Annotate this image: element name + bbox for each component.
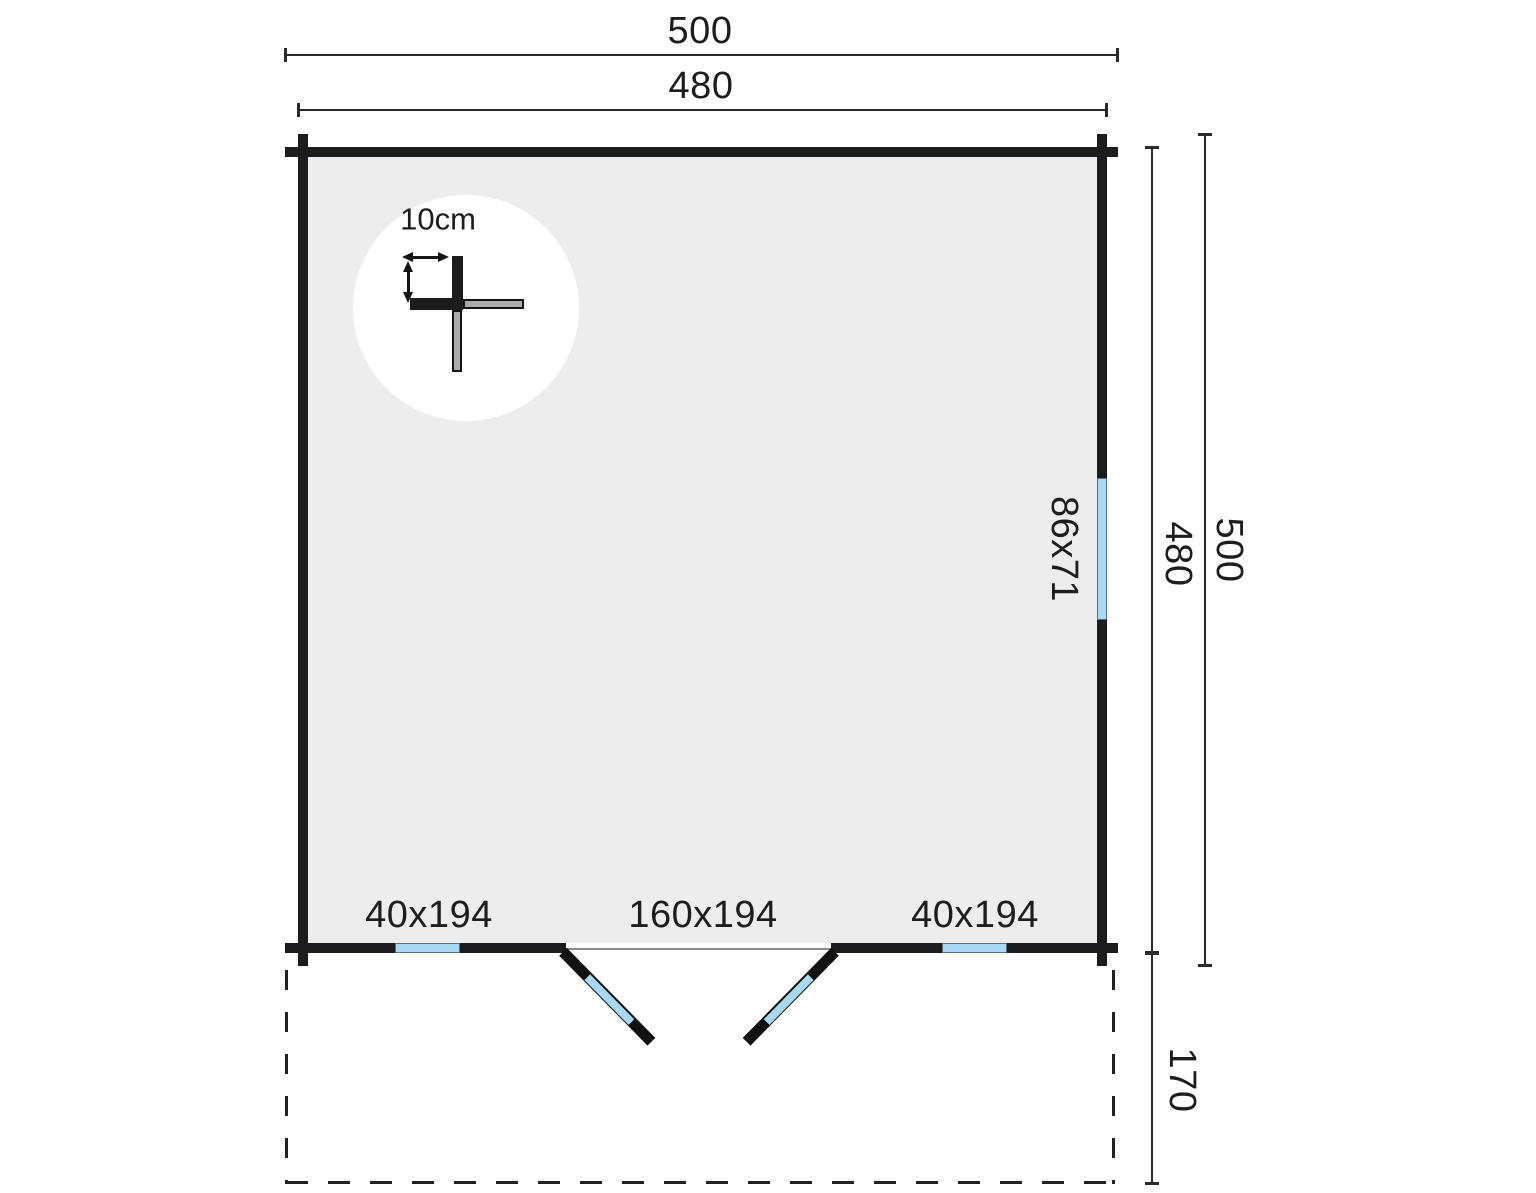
window-bottom-right-label: 40x194 [911, 896, 1039, 934]
dim-line-top-outer [285, 54, 1118, 56]
dim-line-right-outer [1204, 134, 1206, 966]
window-bottom-right [942, 943, 1007, 953]
dim-label-right-outer: 500 [1210, 518, 1248, 583]
terrace-outline-left [285, 970, 288, 1184]
door-leaf-right-glass [763, 974, 813, 1025]
detail-log-end-vertical [452, 310, 462, 372]
door-label: 160x194 [628, 896, 777, 934]
detail-wall-section-horizontal [410, 298, 463, 310]
door-leaf-left [559, 948, 655, 1046]
dim-label-top-inner: 480 [669, 67, 734, 105]
dim-line-terrace-depth [1151, 953, 1153, 1184]
wall-left [298, 134, 308, 966]
window-right [1097, 478, 1107, 620]
door-leaf-left-glass [585, 974, 635, 1025]
window-bottom-left-label: 40x194 [365, 896, 493, 934]
detail-arrow-horizontal [408, 256, 442, 259]
dim-line-right-inner [1151, 147, 1153, 953]
dim-label-top-outer: 500 [668, 12, 733, 50]
detail-log-end-horizontal [463, 299, 524, 309]
detail-arrowhead-right-icon [438, 252, 449, 262]
window-right-label: 86x71 [1045, 496, 1083, 602]
window-bottom-left [395, 943, 460, 953]
dim-label-right-inner: 480 [1159, 522, 1197, 587]
terrace-outline-bottom [286, 1181, 1116, 1184]
detail-thickness-label: 10cm [400, 204, 476, 235]
floor-plan: 10cm 500 480 480 500 170 86x71 40x194 [0, 0, 1536, 1193]
terrace-outline-right [1112, 970, 1115, 1184]
door-leaf-right [743, 948, 839, 1046]
wall-top [285, 147, 1118, 157]
dim-label-terrace-depth: 170 [1163, 1048, 1201, 1113]
dim-line-top-inner [298, 109, 1107, 111]
door-sill-line [566, 948, 831, 950]
detail-arrowhead-up-icon [403, 261, 413, 272]
